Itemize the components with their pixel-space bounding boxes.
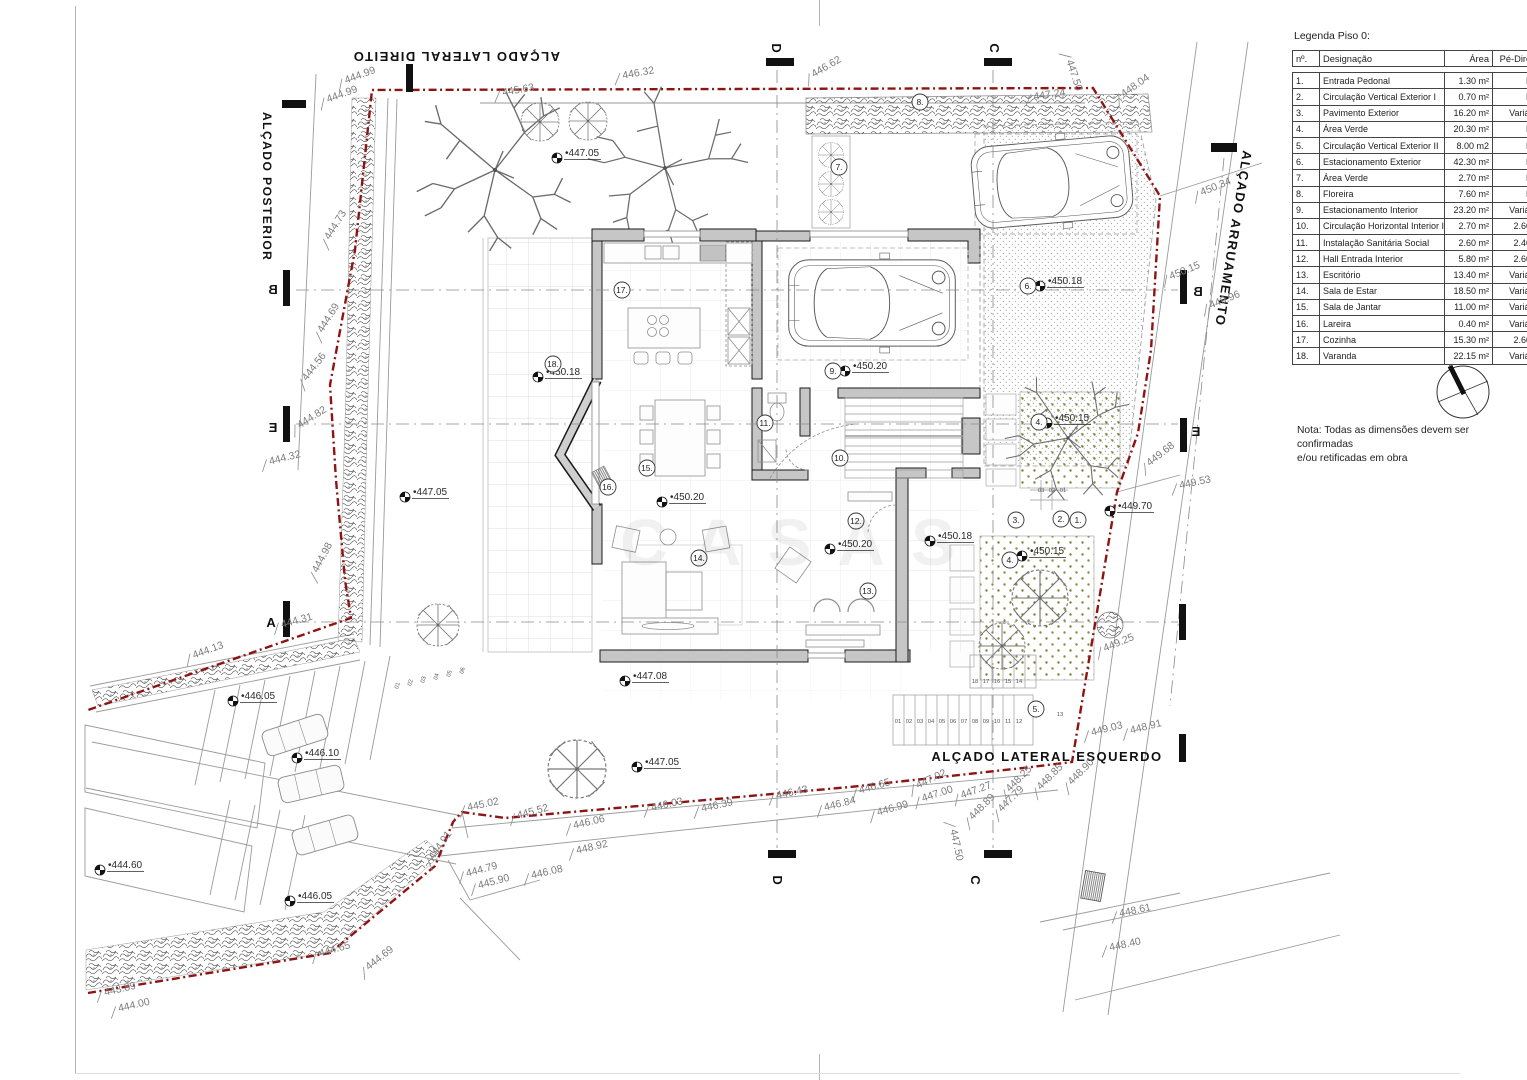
dim-label: 446.84 bbox=[814, 794, 857, 818]
spot-elevation: •447.05 bbox=[400, 487, 449, 502]
legend-cell: Pavimento Exterior bbox=[1320, 105, 1445, 121]
legend-cell: 9. bbox=[1293, 202, 1320, 218]
spot-elevation: •444.60 bbox=[95, 860, 144, 875]
legend-cell: 8. bbox=[1293, 186, 1320, 202]
legend-cell: 18.50 m² bbox=[1445, 283, 1493, 299]
svg-text:444.98: 444.98 bbox=[310, 540, 336, 574]
svg-text:446.84: 446.84 bbox=[823, 794, 857, 813]
legend-cell: Área Verde bbox=[1320, 121, 1445, 137]
section-cut-bar bbox=[1180, 418, 1187, 452]
svg-text:449.03: 449.03 bbox=[1090, 719, 1124, 738]
legend-cell: 18. bbox=[1293, 348, 1320, 364]
step-number: 02 bbox=[407, 679, 414, 687]
legend-cell: Entrada Pedonal bbox=[1320, 73, 1445, 89]
garage-car bbox=[789, 253, 956, 353]
svg-text:445.52: 445.52 bbox=[516, 802, 550, 822]
svg-text:•446.05: •446.05 bbox=[241, 691, 276, 702]
step-number: 04 bbox=[928, 719, 935, 725]
dim-label: 444.98 bbox=[305, 540, 337, 583]
step-number: 07 bbox=[961, 719, 967, 725]
legend-cell: Lareira bbox=[1320, 316, 1445, 332]
step-number: 10 bbox=[994, 719, 1000, 725]
drain-grate bbox=[1081, 870, 1106, 901]
svg-text:448.92: 448.92 bbox=[575, 838, 609, 857]
spot-elevation: •447.05 bbox=[632, 757, 681, 772]
legend-cell: 2.70 m² bbox=[1445, 170, 1493, 186]
legend-cell: 7.60 m² bbox=[1445, 186, 1493, 202]
legend-cell: 6. bbox=[1293, 154, 1320, 170]
dim-label: 446.65 bbox=[849, 776, 893, 801]
svg-text:449.53: 449.53 bbox=[1178, 473, 1212, 491]
room-marker: 9. bbox=[825, 363, 841, 379]
legend-cell: Variável bbox=[1493, 283, 1527, 299]
svg-text:1.: 1. bbox=[1074, 515, 1081, 525]
dim-label: 444.32 bbox=[259, 448, 302, 472]
legend-cell: 23.20 m² bbox=[1445, 202, 1493, 218]
section-letter: A bbox=[266, 615, 276, 630]
dim-label: 444.00 bbox=[108, 996, 151, 1019]
svg-text:445.02: 445.02 bbox=[466, 795, 500, 813]
legend-title: Legenda Piso 0: bbox=[1294, 30, 1520, 42]
section-letter: D bbox=[769, 43, 784, 52]
svg-text:444.69: 444.69 bbox=[315, 301, 342, 335]
room-marker: 17. bbox=[614, 282, 630, 298]
legend-cell: 2.60 m bbox=[1493, 218, 1527, 234]
room-marker: 1. bbox=[1070, 512, 1086, 528]
legend-cell: 11. bbox=[1293, 235, 1320, 251]
step-number: 03 bbox=[420, 676, 427, 684]
svg-text:444.99: 444.99 bbox=[343, 64, 377, 86]
dim-label: 446.32 bbox=[613, 64, 656, 85]
legend-cell: 4. bbox=[1293, 121, 1320, 137]
room-marker: 8. bbox=[912, 94, 928, 110]
legend-cell: Designação bbox=[1320, 51, 1445, 67]
section-cut-bar bbox=[283, 270, 290, 306]
dim-label: 445.63 bbox=[493, 81, 536, 102]
legend-cell: Estacionamento Interior bbox=[1320, 202, 1445, 218]
room-marker: 4. bbox=[1031, 414, 1047, 430]
svg-text:444.82: 444.82 bbox=[295, 404, 329, 431]
room-marker: 6. bbox=[1020, 278, 1036, 294]
legend-cell: 2.60 m² bbox=[1445, 235, 1493, 251]
dim-label: 444.31 bbox=[271, 611, 314, 635]
legend-cell: 12. bbox=[1293, 251, 1320, 267]
room-marker: 11. bbox=[757, 415, 773, 431]
dim-label: 447.50 bbox=[943, 819, 965, 862]
svg-text:446.62: 446.62 bbox=[809, 54, 843, 81]
svg-text:446.08: 446.08 bbox=[530, 863, 564, 882]
manhole-circle bbox=[1097, 612, 1123, 638]
dim-label: 446.06 bbox=[563, 813, 606, 836]
dim-label: 446.99 bbox=[867, 798, 911, 823]
svg-text:446.06: 446.06 bbox=[572, 813, 606, 832]
svg-text:•447.05: •447.05 bbox=[565, 148, 600, 159]
legend-cell: 13. bbox=[1293, 267, 1320, 283]
dim-label: 444.73 bbox=[317, 208, 351, 250]
svg-text:•446.05: •446.05 bbox=[298, 891, 333, 902]
legend-cell: Área Verde bbox=[1320, 170, 1445, 186]
legend-cell: N/A bbox=[1493, 137, 1527, 153]
legend-cell: Cozinha bbox=[1320, 332, 1445, 348]
step-number: 14 bbox=[1016, 679, 1023, 685]
step-number: 16 bbox=[994, 679, 1000, 685]
legend-cell: Hall Entrada Interior bbox=[1320, 251, 1445, 267]
title-posterior: ALÇADO POSTERIOR bbox=[260, 112, 274, 261]
step-number: 03 bbox=[1038, 488, 1044, 494]
room-marker: 4. bbox=[1002, 552, 1018, 568]
legend-cell: 11.00 m² bbox=[1445, 299, 1493, 315]
legend-cell: 7. bbox=[1293, 170, 1320, 186]
room-marker: 3. bbox=[1008, 512, 1024, 528]
legend-cell: 2.60 m bbox=[1493, 332, 1527, 348]
section-cut-bar bbox=[406, 64, 413, 92]
legend-cell: Variável bbox=[1493, 316, 1527, 332]
step-number: 15 bbox=[1005, 679, 1011, 685]
svg-text:11.: 11. bbox=[759, 418, 770, 428]
step-number: 06 bbox=[459, 667, 466, 675]
legend-cell: Instalação Sanitária Social bbox=[1320, 235, 1445, 251]
step-number: 13 bbox=[1057, 712, 1063, 718]
legend-cell: 14. bbox=[1293, 283, 1320, 299]
title-lateral-esquerdo: ALÇADO LATERAL ESQUERDO bbox=[931, 749, 1162, 764]
svg-text:444.00: 444.00 bbox=[117, 996, 151, 1015]
svg-text:448.61: 448.61 bbox=[1118, 901, 1152, 919]
step-number: 02 bbox=[1049, 488, 1055, 494]
svg-text:6.: 6. bbox=[1024, 281, 1031, 291]
svg-text:17.: 17. bbox=[616, 285, 628, 295]
svg-text:445.63: 445.63 bbox=[501, 81, 535, 98]
legend-cell: 8.00 m2 bbox=[1445, 137, 1493, 153]
legend-cell: N/A bbox=[1493, 186, 1527, 202]
legend-cell: 10. bbox=[1293, 218, 1320, 234]
svg-text:8.: 8. bbox=[916, 97, 923, 107]
section-cut-bar bbox=[282, 100, 306, 108]
svg-text:4.: 4. bbox=[1035, 417, 1042, 427]
section-letter: C bbox=[987, 43, 1002, 53]
spot-elevation: •449.70 bbox=[1105, 501, 1154, 516]
legend-cell: Variável bbox=[1493, 105, 1527, 121]
svg-text:447.50: 447.50 bbox=[947, 828, 965, 862]
legend-cell: Estacionamento Exterior bbox=[1320, 154, 1445, 170]
dim-label: 444.69 bbox=[310, 301, 344, 343]
parked-car-street-2 bbox=[277, 764, 345, 804]
section-letter: B bbox=[1193, 284, 1202, 299]
svg-text:448.91: 448.91 bbox=[1129, 717, 1163, 736]
legend-cell: 13.40 m² bbox=[1445, 267, 1493, 283]
legend-panel: Legenda Piso 0: nº.DesignaçãoÁreaPé-Dire… bbox=[1292, 30, 1520, 365]
legend-cell: 17. bbox=[1293, 332, 1320, 348]
title-lateral-direito: ALÇADO LATERAL DIREITO bbox=[352, 49, 560, 64]
step-number: 06 bbox=[950, 719, 956, 725]
svg-text:•449.70: •449.70 bbox=[1118, 501, 1153, 512]
dim-label: 448.85 bbox=[1028, 761, 1067, 800]
legend-cell: 5.80 m² bbox=[1445, 251, 1493, 267]
legend-cell: N/A bbox=[1493, 154, 1527, 170]
watermark-text: CASAS bbox=[620, 505, 981, 579]
step-number: 05 bbox=[939, 719, 945, 725]
svg-text:444.13: 444.13 bbox=[191, 639, 225, 661]
legend-cell: Variável bbox=[1493, 299, 1527, 315]
step-number: 09 bbox=[983, 719, 989, 725]
step-number: 01 bbox=[895, 719, 901, 725]
dim-label: 444.13 bbox=[182, 639, 226, 666]
legend-cell: Circulação Vertical Exterior II bbox=[1320, 137, 1445, 153]
dim-label: 448.91 bbox=[1120, 717, 1163, 741]
legend-cell: 16.20 m² bbox=[1445, 105, 1493, 121]
legend-cell: nº. bbox=[1293, 51, 1320, 67]
section-letter: E bbox=[268, 420, 277, 435]
legend-cell: 1.30 m² bbox=[1445, 73, 1493, 89]
svg-text:•450.15: •450.15 bbox=[1030, 546, 1065, 557]
legend-cell: Variável bbox=[1493, 202, 1527, 218]
dim-label: 449.68 bbox=[1137, 439, 1178, 475]
section-cut-bar bbox=[768, 850, 796, 858]
room-marker: 2. bbox=[1053, 511, 1069, 527]
note-text: Nota: Todas as dimensões devem ser confi… bbox=[1297, 424, 1527, 466]
legend-cell: N/A bbox=[1493, 73, 1527, 89]
legend-cell: N/A bbox=[1493, 121, 1527, 137]
section-letter: E bbox=[1191, 424, 1200, 439]
step-number: 03 bbox=[917, 719, 923, 725]
dim-label: 444.69 bbox=[356, 943, 397, 979]
section-letter: C bbox=[968, 875, 983, 885]
svg-text:•447.08: •447.08 bbox=[633, 671, 668, 682]
svg-text:444.32: 444.32 bbox=[268, 448, 302, 467]
svg-text:446.32: 446.32 bbox=[621, 64, 655, 81]
section-cut-bar bbox=[984, 58, 1012, 66]
legend-cell: 5. bbox=[1293, 137, 1320, 153]
dim-label: 444.82 bbox=[287, 404, 329, 438]
svg-text:444.56: 444.56 bbox=[300, 350, 329, 383]
room-marker: 10. bbox=[832, 450, 848, 466]
svg-text:13.: 13. bbox=[862, 586, 874, 596]
step-number: 05 bbox=[446, 670, 453, 678]
step-number: 04 bbox=[433, 672, 441, 681]
parked-car-street-3 bbox=[291, 814, 360, 857]
step-number: 01 bbox=[1060, 488, 1066, 494]
legend-cell: Circulação Vertical Exterior I bbox=[1320, 89, 1445, 105]
svg-text:446.65: 446.65 bbox=[857, 776, 891, 796]
svg-text:•450.20: •450.20 bbox=[670, 492, 705, 503]
svg-text:16.: 16. bbox=[602, 482, 614, 492]
step-number: 11 bbox=[1005, 719, 1011, 725]
svg-text:•450.18: •450.18 bbox=[1048, 276, 1083, 287]
room-marker: 16. bbox=[600, 479, 616, 495]
legend-cell: 20.30 m² bbox=[1445, 121, 1493, 137]
dim-label: 448.40 bbox=[1099, 935, 1142, 957]
svg-text:•444.60: •444.60 bbox=[108, 860, 143, 871]
svg-text:444.69: 444.69 bbox=[363, 943, 396, 972]
step-number: 17 bbox=[983, 679, 989, 685]
legend-cell: Sala de Jantar bbox=[1320, 299, 1445, 315]
legend-cell: N/A bbox=[1493, 170, 1527, 186]
room-marker: 7. bbox=[831, 159, 847, 175]
legend-cell: Área bbox=[1445, 51, 1493, 67]
room-marker: 18. bbox=[545, 356, 561, 372]
legend-cell: Varanda bbox=[1320, 348, 1445, 364]
section-cut-bar bbox=[1211, 143, 1237, 152]
section-letter: B bbox=[268, 282, 277, 297]
dim-label: 446.39 bbox=[691, 796, 734, 818]
dim-label: 446.03 bbox=[641, 795, 684, 817]
legend-cell: 2.70 m² bbox=[1445, 218, 1493, 234]
step-number: 02 bbox=[906, 719, 912, 725]
room-marker: 13. bbox=[860, 583, 876, 599]
legend-cell: 1. bbox=[1293, 73, 1320, 89]
section-cut-bar bbox=[984, 850, 1012, 858]
legend-cell: Escritório bbox=[1320, 267, 1445, 283]
svg-text:15.: 15. bbox=[641, 463, 653, 473]
svg-text:•450.20: •450.20 bbox=[853, 361, 888, 372]
svg-text:446.43: 446.43 bbox=[775, 783, 809, 801]
legend-cell: 2. bbox=[1293, 89, 1320, 105]
step-number: 12 bbox=[1016, 719, 1022, 725]
room-marker: 15. bbox=[639, 460, 655, 476]
section-cut-bar bbox=[1179, 604, 1186, 640]
legend-table: nº.DesignaçãoÁreaPé-Direito1.Entrada Ped… bbox=[1292, 50, 1527, 365]
legend-cell: 2.60 m bbox=[1493, 251, 1527, 267]
svg-text:•446.10: •446.10 bbox=[305, 748, 340, 759]
legend-cell: Pé-Direito bbox=[1493, 51, 1527, 67]
svg-text:3.: 3. bbox=[1012, 515, 1019, 525]
legend-cell: Variável bbox=[1493, 267, 1527, 283]
svg-text:7.: 7. bbox=[835, 162, 842, 172]
dim-label: 446.62 bbox=[802, 54, 845, 87]
step-number: 08 bbox=[972, 719, 978, 725]
dim-label: 448.92 bbox=[566, 838, 609, 861]
svg-text:446.03: 446.03 bbox=[650, 795, 684, 813]
legend-cell: Floreira bbox=[1320, 186, 1445, 202]
legend-cell: 0.40 m² bbox=[1445, 316, 1493, 332]
legend-cell: 3. bbox=[1293, 105, 1320, 121]
drawing-sheet: { "legend": { "title": "Legenda Piso 0:"… bbox=[0, 0, 1527, 1080]
svg-text:447.50: 447.50 bbox=[1063, 58, 1084, 92]
section-letter: D bbox=[770, 875, 785, 884]
dim-label: 444.56 bbox=[294, 350, 330, 391]
room-marker: 5. bbox=[1028, 701, 1044, 717]
legend-cell: Sala de Estar bbox=[1320, 283, 1445, 299]
svg-text:•447.05: •447.05 bbox=[645, 757, 680, 768]
svg-text:448.40: 448.40 bbox=[1108, 935, 1142, 953]
section-cut-bar bbox=[1179, 734, 1186, 762]
section-cut-bar bbox=[283, 406, 290, 442]
svg-text:4.: 4. bbox=[1006, 555, 1013, 565]
legend-cell: 15.30 m² bbox=[1445, 332, 1493, 348]
dim-label: 448.61 bbox=[1109, 901, 1152, 923]
step-number: 01 bbox=[394, 682, 401, 690]
svg-text:10.: 10. bbox=[834, 453, 846, 463]
legend-cell: 42.30 m² bbox=[1445, 154, 1493, 170]
spot-elevation: •446.05 bbox=[285, 891, 334, 906]
legend-cell: Circulação Horizontal Interior I bbox=[1320, 218, 1445, 234]
legend-cell: 15. bbox=[1293, 299, 1320, 315]
legend-cell: N/A bbox=[1493, 89, 1527, 105]
legend-cell: 22.15 m² bbox=[1445, 348, 1493, 364]
section-cut-bar bbox=[766, 58, 794, 66]
svg-text:446.99: 446.99 bbox=[875, 798, 909, 818]
svg-text:444.73: 444.73 bbox=[322, 208, 349, 242]
svg-text:2.: 2. bbox=[1057, 514, 1064, 524]
svg-text:449.68: 449.68 bbox=[1144, 439, 1177, 468]
svg-text:•447.05: •447.05 bbox=[413, 487, 448, 498]
svg-text:5.: 5. bbox=[1032, 704, 1039, 714]
legend-cell: Variável bbox=[1493, 348, 1527, 364]
svg-text:450.34: 450.34 bbox=[1199, 175, 1233, 198]
legend-cell: 0.70 m² bbox=[1445, 89, 1493, 105]
step-number: 18 bbox=[972, 679, 978, 685]
spot-elevation: •446.05 bbox=[228, 691, 277, 706]
legend-cell: 2.40 m bbox=[1493, 235, 1527, 251]
svg-text:9.: 9. bbox=[829, 366, 836, 376]
svg-text:•450.15: •450.15 bbox=[1055, 413, 1090, 424]
svg-text:18.: 18. bbox=[547, 359, 559, 369]
dim-label: 446.08 bbox=[521, 863, 564, 886]
legend-cell: 16. bbox=[1293, 316, 1320, 332]
